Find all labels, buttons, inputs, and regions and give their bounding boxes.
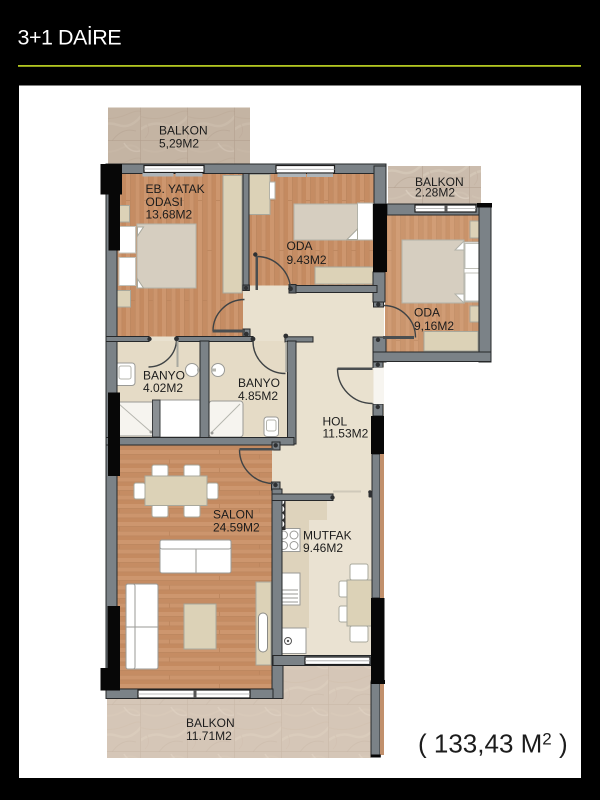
- svg-text:BALKON: BALKON: [159, 124, 208, 138]
- svg-text:9.43M2: 9.43M2: [287, 253, 327, 267]
- svg-text:5,29M2: 5,29M2: [159, 137, 199, 151]
- svg-text:BALKON: BALKON: [186, 716, 235, 730]
- svg-text:9.46M2: 9.46M2: [303, 541, 343, 555]
- svg-text:2.28M2: 2.28M2: [415, 186, 455, 200]
- svg-text:11.71M2: 11.71M2: [186, 729, 232, 743]
- svg-text:SALON: SALON: [213, 508, 254, 522]
- svg-text:24.59M2: 24.59M2: [213, 521, 260, 535]
- svg-text:4.85M2: 4.85M2: [238, 389, 278, 403]
- svg-text:13.68M2: 13.68M2: [146, 208, 193, 222]
- svg-text:BANYO: BANYO: [238, 376, 280, 390]
- svg-text:EB. YATAK: EB. YATAK: [146, 182, 205, 196]
- svg-text:11.53M2: 11.53M2: [323, 427, 369, 441]
- svg-text:9,16M2: 9,16M2: [414, 319, 454, 333]
- svg-text:4.02M2: 4.02M2: [143, 381, 183, 395]
- svg-text:ODA: ODA: [287, 239, 313, 253]
- svg-text:ODA: ODA: [414, 306, 440, 320]
- svg-text:3+1 DAİRE: 3+1 DAİRE: [18, 26, 122, 50]
